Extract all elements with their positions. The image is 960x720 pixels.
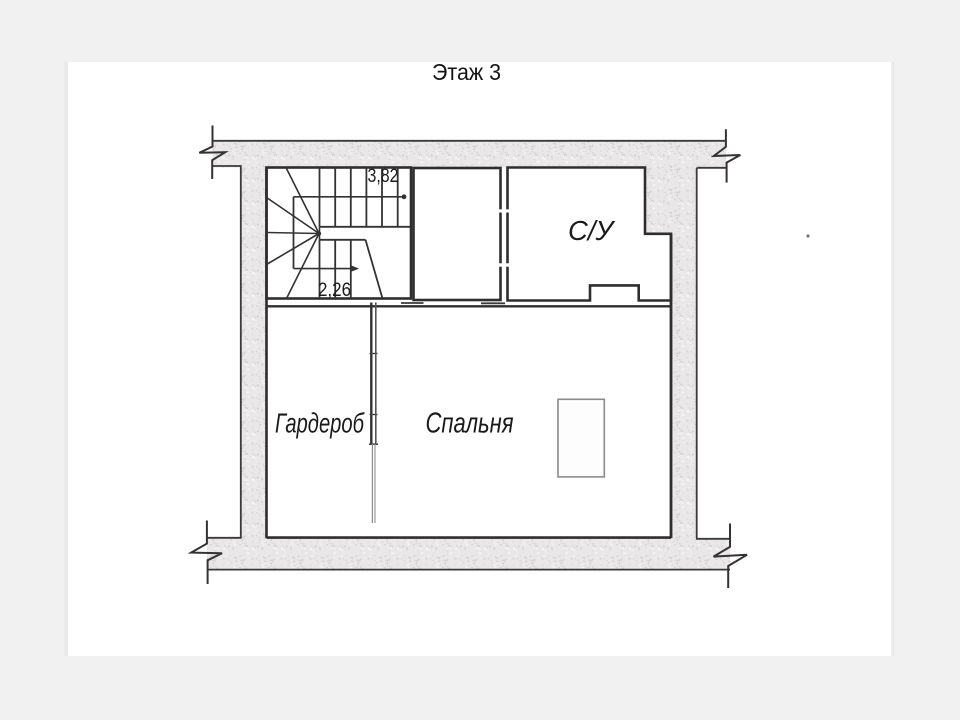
svg-text:2,26: 2,26 [318,280,351,301]
svg-text:Гардероб: Гардероб [275,408,365,439]
svg-text:Этаж 3: Этаж 3 [432,59,501,85]
svg-text:3,82: 3,82 [368,166,399,187]
svg-text:Спальня: Спальня [426,408,514,440]
svg-text:С/У: С/У [568,215,616,246]
